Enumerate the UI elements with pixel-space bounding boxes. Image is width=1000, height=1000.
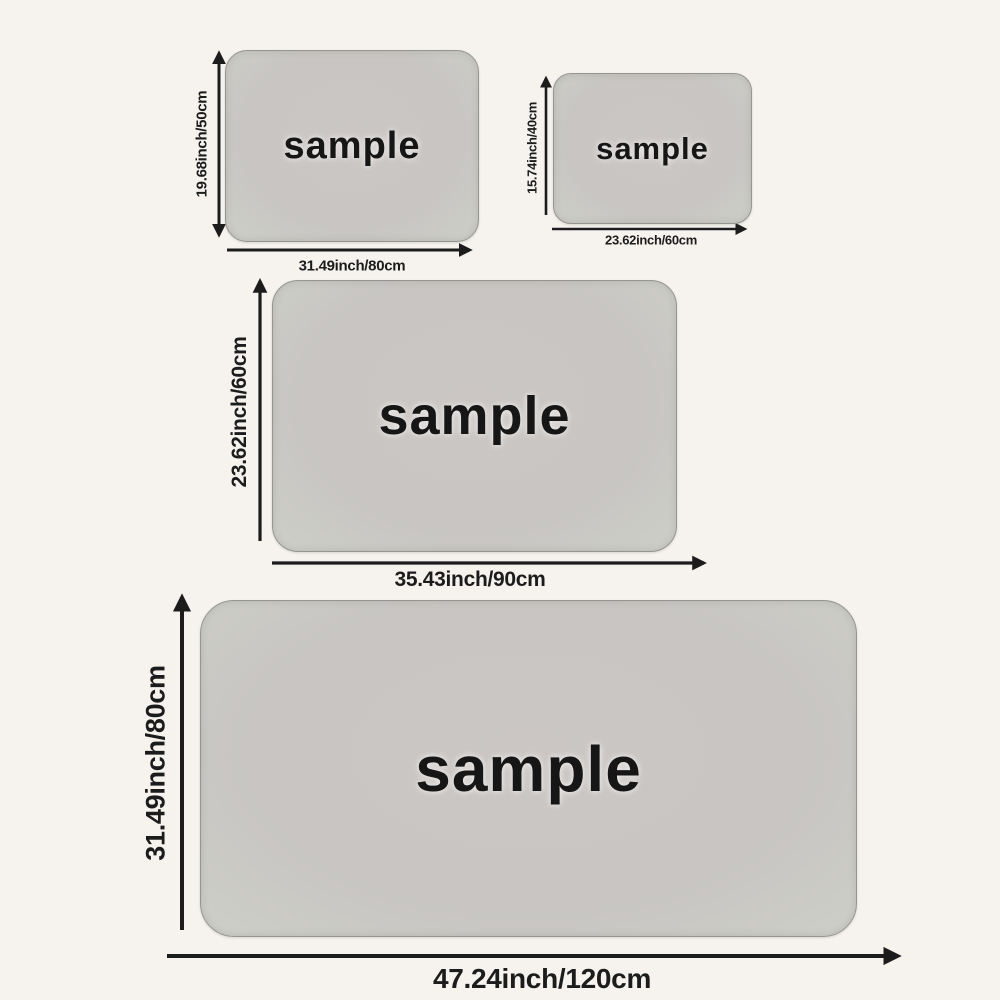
width-label: 47.24inch/120cm: [433, 963, 651, 995]
height-label: 23.62inch/60cm: [228, 336, 252, 487]
width-label: 23.62inch/60cm: [605, 233, 697, 248]
mat-40x60: sample: [553, 73, 752, 224]
mat-80x120: sample: [200, 600, 857, 937]
sample-watermark: sample: [378, 385, 570, 447]
sample-watermark: sample: [415, 732, 642, 806]
size-chart: sample 19.68inch/50cm 31.49inch/80cm sam…: [0, 0, 1000, 1000]
sample-watermark: sample: [596, 131, 709, 167]
height-label: 15.74inch/40cm: [525, 102, 540, 194]
height-label: 31.49inch/80cm: [141, 665, 172, 860]
mat-50x80: sample: [225, 50, 479, 242]
sample-watermark: sample: [284, 125, 421, 168]
height-label: 19.68inch/50cm: [194, 91, 211, 198]
width-label: 35.43inch/90cm: [394, 568, 545, 592]
width-label: 31.49inch/80cm: [299, 258, 406, 275]
mat-60x90: sample: [272, 280, 677, 552]
